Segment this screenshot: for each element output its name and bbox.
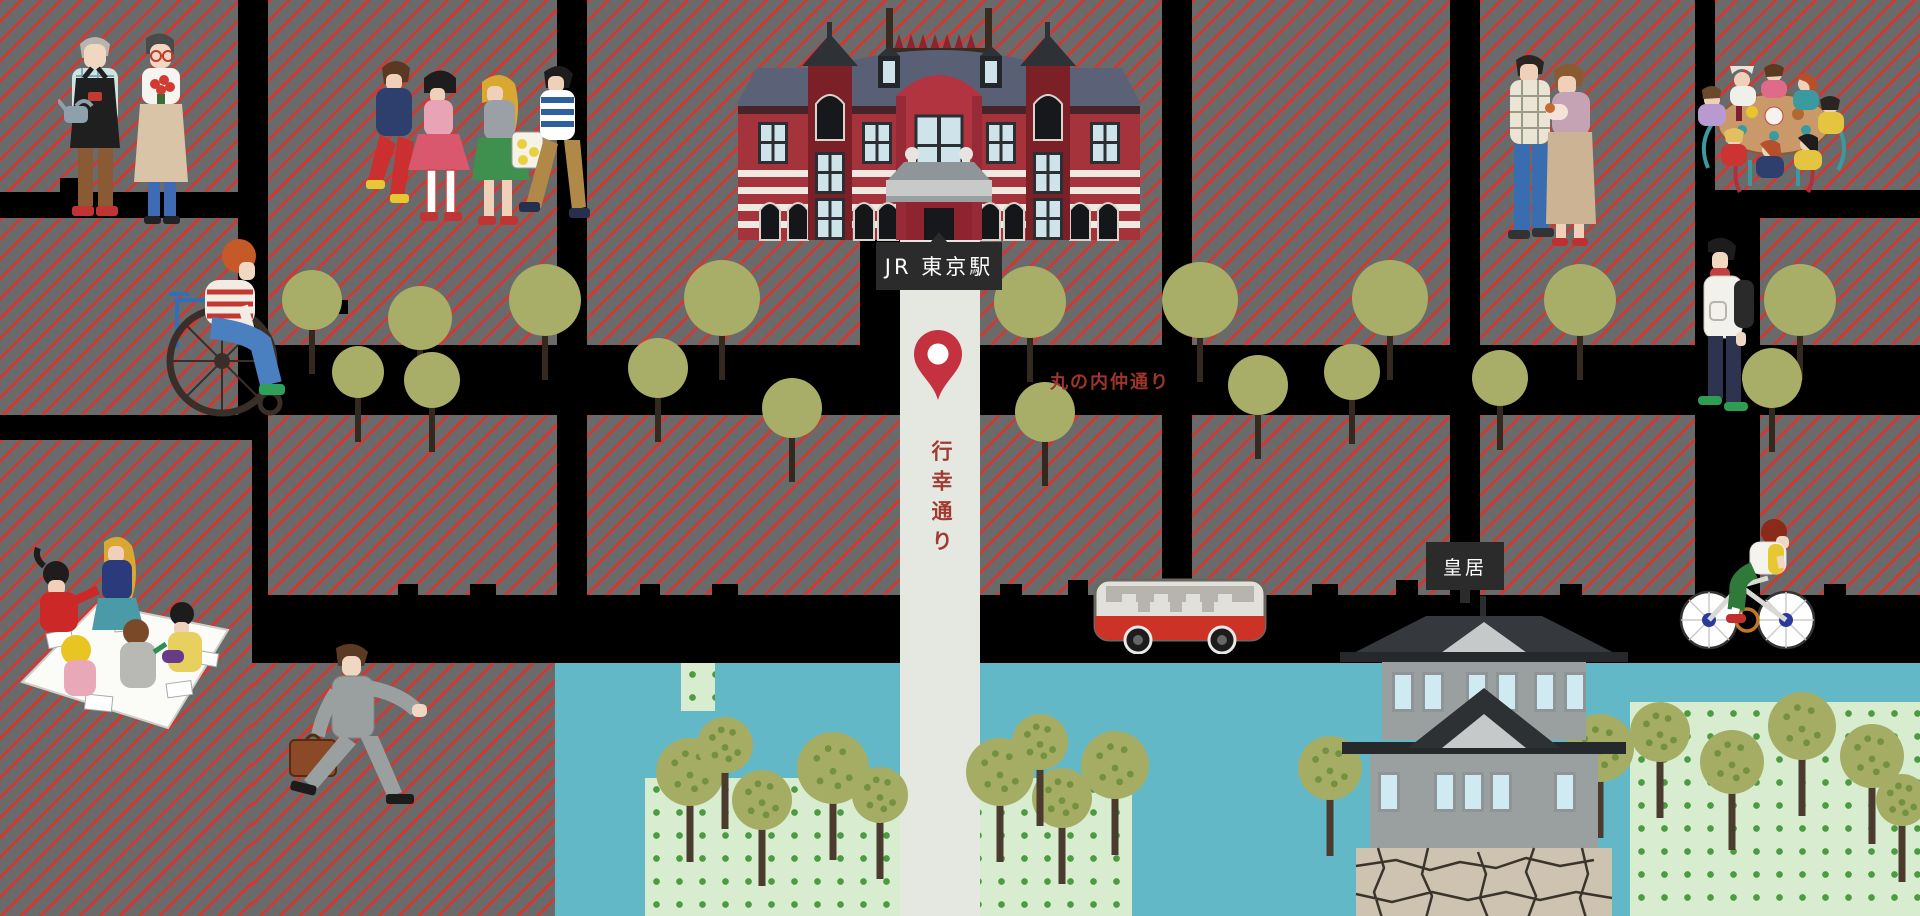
street-tree [1324, 344, 1380, 448]
wheelchair-person [147, 236, 292, 421]
building-entrance [1068, 580, 1088, 598]
street-tree [1472, 350, 1528, 454]
building-entrance [1824, 584, 1846, 598]
street-tree [509, 264, 581, 384]
businessman-with-briefcase [284, 642, 446, 820]
family-with-baby [1498, 52, 1600, 250]
street-tree [1544, 264, 1616, 384]
building-entrance [640, 584, 660, 598]
park-tree [1630, 702, 1690, 822]
building-entrance [1312, 584, 1338, 598]
park-tree [1012, 714, 1068, 830]
street-tree [332, 346, 384, 446]
picnic-group [16, 532, 256, 737]
building-entrance [470, 584, 496, 598]
cyclist [1676, 516, 1824, 654]
park-tree [1700, 730, 1764, 854]
illustrated-city-map: JR 東京駅 皇居 行幸通り 丸の内仲通り [0, 0, 1920, 916]
park-tree [852, 767, 908, 883]
park-area [681, 663, 715, 711]
tokyo-station-building [738, 0, 1140, 248]
park-tree [1081, 731, 1149, 859]
street-name-gyoko: 行幸通り [926, 440, 956, 560]
street-name-naka: 丸の内仲通り [1050, 368, 1170, 394]
street-tree [1162, 262, 1238, 386]
building-entrance [1000, 584, 1022, 598]
red-bus [1092, 570, 1268, 654]
party-table-group [1690, 42, 1858, 194]
backpack-man [1696, 236, 1766, 414]
building-entrance [712, 584, 738, 598]
park-tree [697, 717, 753, 833]
street-tree [1228, 355, 1288, 463]
park-tree [1876, 774, 1920, 886]
street-tree [1015, 382, 1075, 490]
park-tree [1768, 692, 1836, 820]
street-tree [404, 352, 460, 456]
shopping-group [366, 52, 604, 250]
elderly-gardener-couple [58, 30, 203, 230]
street-tree [762, 378, 822, 486]
location-pin [912, 328, 964, 402]
imperial-palace-castle [1338, 596, 1630, 916]
street-tree [628, 338, 688, 446]
building-entrance [398, 584, 418, 598]
street-tree [684, 260, 760, 384]
station-label: JR 東京駅 [876, 242, 1002, 290]
palace-label: 皇居 [1426, 542, 1504, 590]
